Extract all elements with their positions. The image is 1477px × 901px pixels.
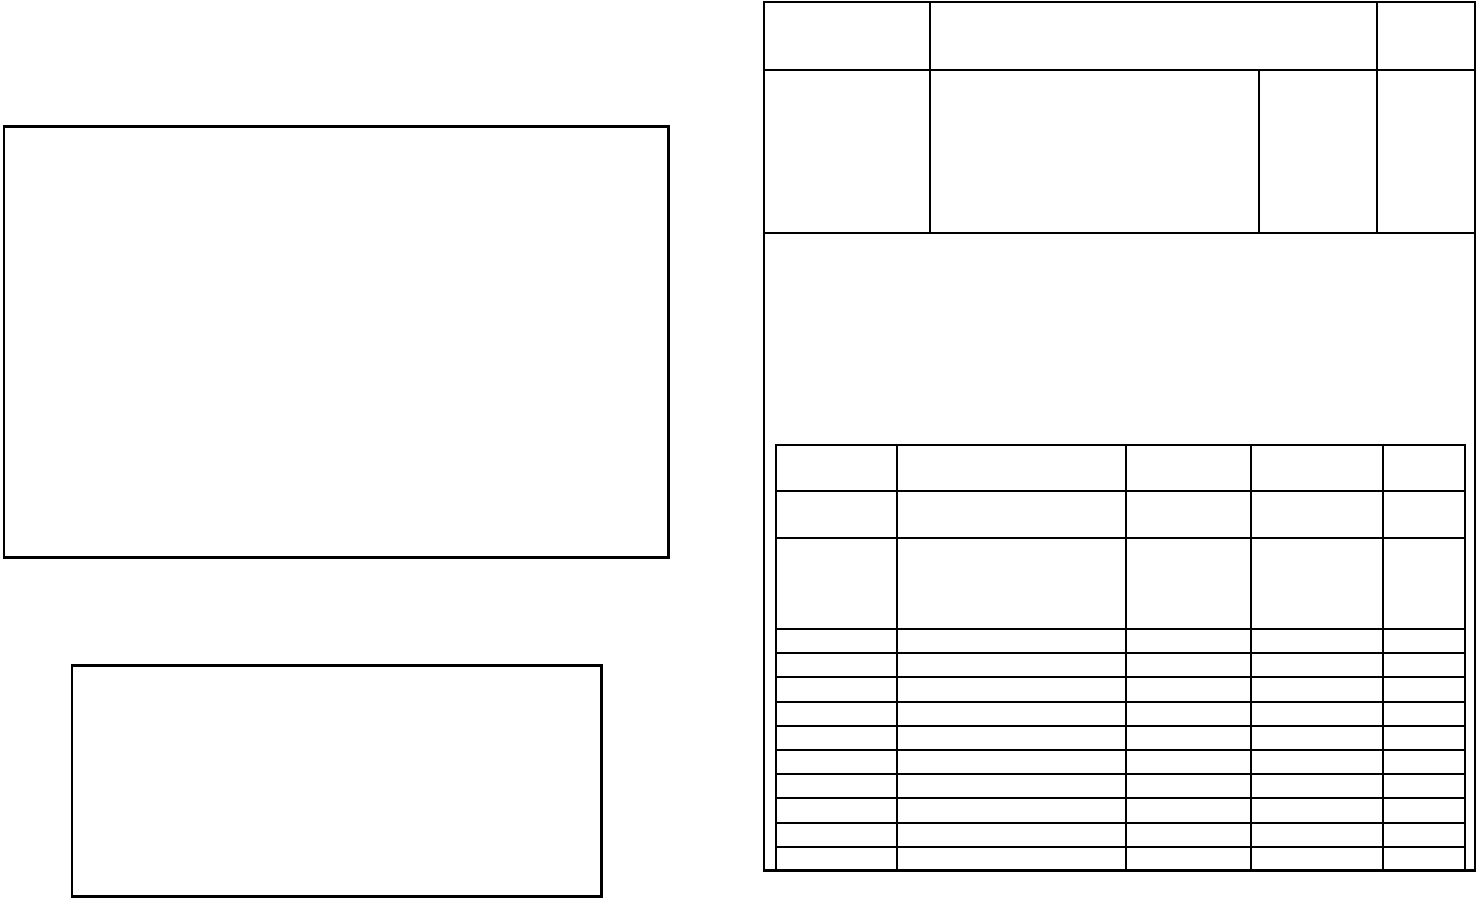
detail-table-cell (777, 678, 898, 700)
detail-table-cell (1127, 446, 1252, 490)
detail-table-cell (1127, 824, 1252, 846)
detail-table-cell (1384, 824, 1464, 846)
detail-table-cell (898, 630, 1127, 652)
detail-table-cell (1252, 630, 1384, 652)
detail-table-cell (1252, 775, 1384, 797)
detail-table-cell (898, 654, 1127, 676)
detail-table-cell (1384, 492, 1464, 537)
page (0, 0, 1477, 901)
note-box (71, 664, 603, 898)
detail-table-cell (1127, 727, 1252, 749)
detail-table-cell (898, 539, 1127, 628)
detail-table-cell (898, 799, 1127, 821)
detail-table-cell (1384, 630, 1464, 652)
detail-table-cell (898, 446, 1127, 490)
detail-table-cell (1127, 654, 1252, 676)
detail-table-cell (777, 751, 898, 773)
detail-table (775, 444, 1466, 872)
detail-table-cell (777, 775, 898, 797)
detail-table-cell (1384, 703, 1464, 725)
detail-table-cell (1127, 703, 1252, 725)
detail-table-cell (898, 703, 1127, 725)
detail-table-cell (1252, 492, 1384, 537)
detail-table-cell (1127, 848, 1252, 870)
detail-table-cell (1252, 654, 1384, 676)
detail-table-row (777, 799, 1464, 823)
title-block-cell (1378, 3, 1474, 69)
detail-table-cell (898, 678, 1127, 700)
detail-table-cell (1127, 775, 1252, 797)
detail-table-cell (1252, 678, 1384, 700)
detail-table-cell (898, 751, 1127, 773)
detail-table-cell (777, 654, 898, 676)
detail-table-row (777, 727, 1464, 751)
detail-table-row (777, 539, 1464, 630)
detail-table-cell (1127, 630, 1252, 652)
detail-table-row (777, 678, 1464, 702)
detail-table-cell (777, 848, 898, 870)
detail-table-row (777, 751, 1464, 775)
title-block-row (765, 71, 1474, 232)
title-block-cell (765, 71, 931, 232)
detail-table-cell (898, 727, 1127, 749)
detail-table-cell (1384, 751, 1464, 773)
detail-table-row (777, 703, 1464, 727)
detail-table-cell (1252, 799, 1384, 821)
detail-table-cell (777, 824, 898, 846)
title-block-row (765, 3, 1474, 71)
detail-table-cell (1384, 799, 1464, 821)
detail-table-cell (1252, 751, 1384, 773)
detail-table-cell (1384, 539, 1464, 628)
detail-table-cell (1127, 539, 1252, 628)
title-block-cell (931, 71, 1260, 232)
title-block-cell (1260, 71, 1378, 232)
main-content-box (3, 125, 670, 559)
detail-table-row (777, 775, 1464, 799)
detail-table-row (777, 848, 1464, 870)
detail-table-cell (898, 848, 1127, 870)
detail-table-cell (1252, 446, 1384, 490)
title-block-cell (1378, 71, 1474, 232)
detail-table-row (777, 824, 1464, 848)
detail-table-row (777, 446, 1464, 492)
detail-table-cell (1384, 848, 1464, 870)
detail-table-cell (1252, 539, 1384, 628)
title-block-cell (765, 3, 931, 69)
detail-table-cell (777, 703, 898, 725)
detail-table-cell (1127, 492, 1252, 537)
detail-table-cell (1127, 751, 1252, 773)
detail-table-cell (1384, 775, 1464, 797)
detail-table-row (777, 492, 1464, 539)
detail-table-cell (777, 727, 898, 749)
detail-table-cell (1252, 848, 1384, 870)
detail-table-cell (777, 799, 898, 821)
detail-table-cell (1384, 678, 1464, 700)
detail-table-cell (898, 775, 1127, 797)
detail-table-cell (1384, 727, 1464, 749)
detail-table-cell (1127, 799, 1252, 821)
detail-table-row (777, 630, 1464, 654)
detail-table-cell (777, 446, 898, 490)
detail-table-row (777, 654, 1464, 678)
detail-table-cell (898, 492, 1127, 537)
detail-table-cell (1252, 727, 1384, 749)
detail-table-cell (1127, 678, 1252, 700)
detail-table-cell (777, 630, 898, 652)
detail-table-cell (777, 492, 898, 537)
detail-table-cell (1384, 446, 1464, 490)
detail-table-cell (1252, 703, 1384, 725)
title-block-table (763, 1, 1476, 234)
detail-table-cell (1384, 654, 1464, 676)
detail-table-cell (1252, 824, 1384, 846)
detail-table-cell (898, 824, 1127, 846)
title-block-cell (931, 3, 1378, 69)
detail-table-cell (777, 539, 898, 628)
